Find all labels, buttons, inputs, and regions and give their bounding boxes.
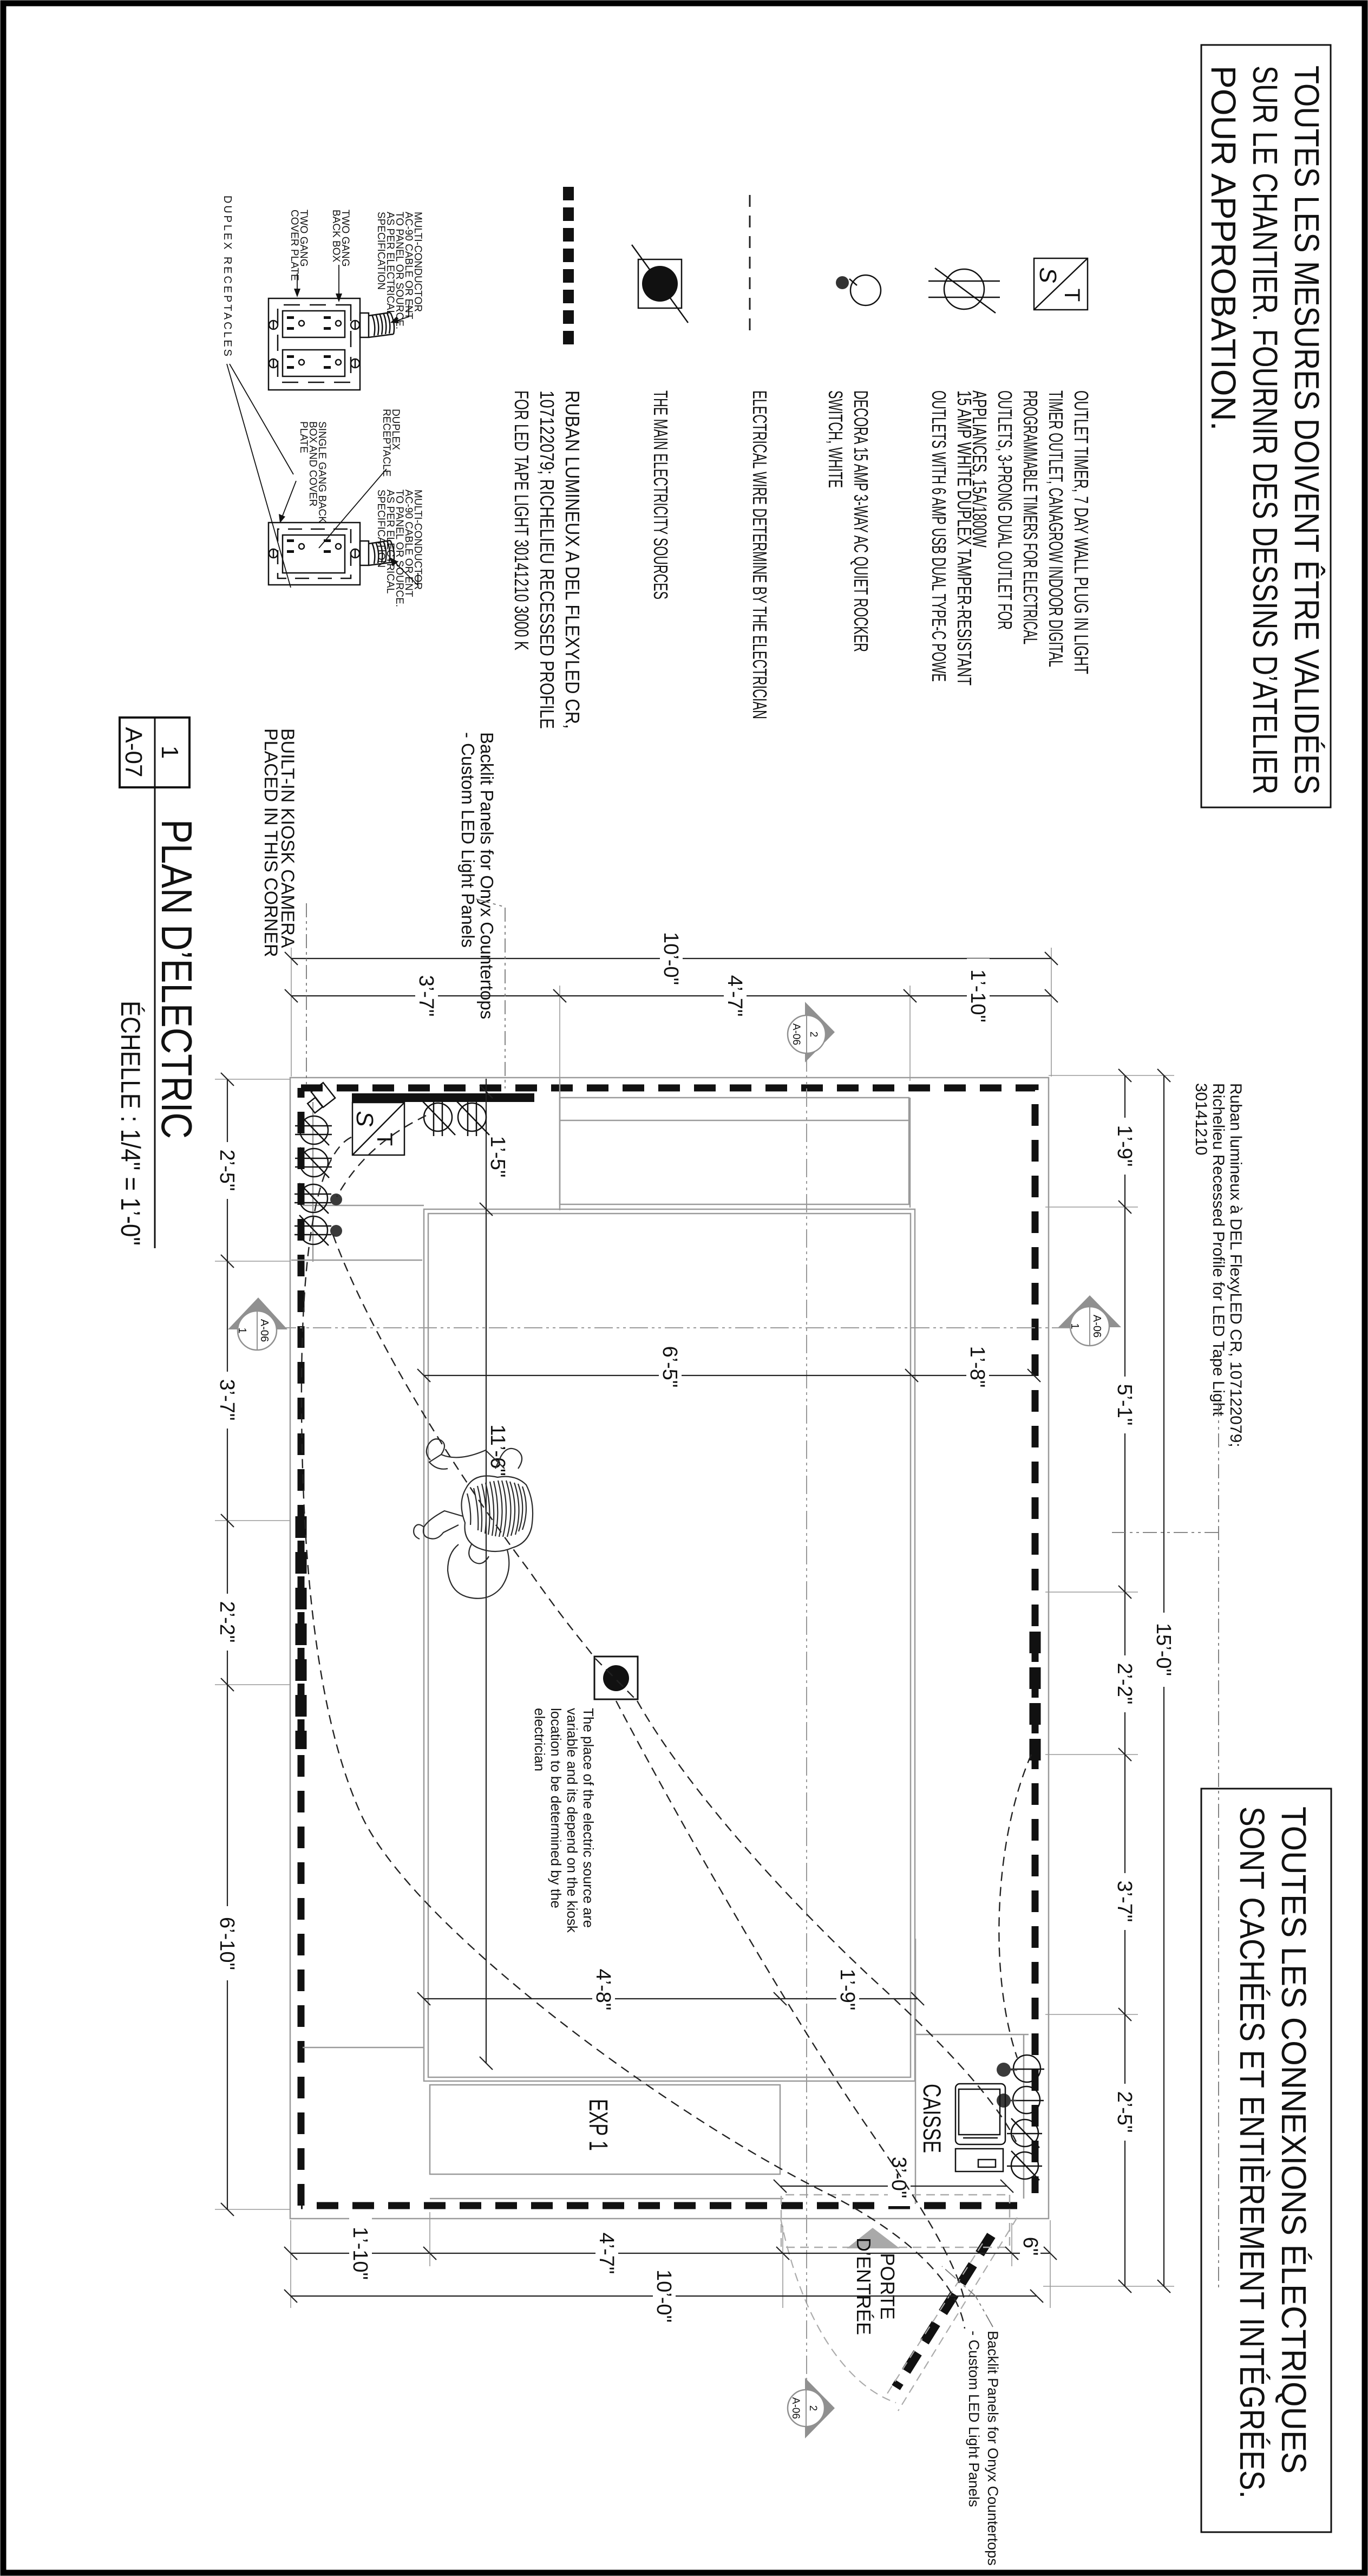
svg-text:RUBAN LUMINEUX A DEL FLEXY: RUBAN LUMINEUX A DEL FLEXYLED CR, [561, 390, 584, 729]
svg-text:FOR LED TAPE LIGHT 30141210 30: FOR LED TAPE LIGHT 30141210 3000 K [510, 390, 533, 650]
svg-text:6’-10": 6’-10" [215, 1917, 238, 1970]
svg-text:TOUTES LES CONNEXIONS ÉLECT: TOUTES LES CONNEXIONS ÉLECTRIQUES [1274, 1807, 1313, 2474]
svg-text:A-06: A-06 [1091, 1315, 1103, 1338]
svg-text:T: T [1060, 289, 1084, 302]
svg-text:4’-7": 4’-7" [723, 975, 746, 1017]
svg-text:10’-0": 10’-0" [659, 932, 682, 985]
svg-text:3’-7": 3’-7" [415, 975, 437, 1017]
svg-text:PLAN D’ELECTRIC: PLAN D’ELECTRIC [153, 819, 201, 1139]
svg-text:Backlit Panels for Onyx Counte: Backlit Panels for Onyx Countertops [985, 2331, 1001, 2566]
svg-text:1: 1 [236, 1327, 248, 1333]
svg-text:4’-7": 4’-7" [595, 2233, 618, 2274]
svg-text:EXP 1: EXP 1 [584, 2099, 612, 2151]
svg-text:Backlit Panels for Onyx Counte: Backlit Panels for Onyx Countertops [477, 732, 497, 1019]
svg-text:A-06: A-06 [258, 1319, 270, 1342]
svg-text:location to be determined by t: location to be determined by the [548, 1708, 564, 1908]
svg-text:3’-7": 3’-7" [1113, 1881, 1136, 1922]
svg-text:2: 2 [807, 2405, 819, 2411]
svg-text:PLATE: PLATE [298, 421, 309, 453]
svg-text:1: 1 [156, 746, 183, 759]
svg-text:A-06: A-06 [790, 2397, 801, 2419]
svg-text:DUPLEX RECEPTACLES: DUPLEX RECEPTACLES [221, 195, 233, 356]
svg-text:electrician: electrician [532, 1708, 548, 1771]
svg-text:1’-9": 1’-9" [836, 1969, 859, 2011]
svg-text:5’-1": 5’-1" [1113, 1384, 1136, 1426]
svg-text:D’ENTRÉE: D’ENTRÉE [853, 2238, 875, 2335]
svg-text:TOUTES LES MESURES DOIVENT: TOUTES LES MESURES DOIVENT ÊTRE VALIDÉES [1287, 66, 1326, 794]
svg-text:1: 1 [1069, 1323, 1081, 1329]
svg-text:- Custom LED Light Panels: - Custom LED Light Panels [966, 2331, 982, 2507]
svg-text:THE MAIN ELECTRICITY SOURCES: THE MAIN ELECTRICITY SOURCES [650, 390, 672, 599]
svg-text:1’-8": 1’-8" [966, 1346, 989, 1388]
svg-text:SUR LE CHANTIER. FOURNIR DES D: SUR LE CHANTIER. FOURNIR DES DESSINS D’A… [1246, 66, 1285, 794]
svg-text:S: S [351, 1111, 378, 1126]
svg-text:OUTLETS WITH 6 AMP USB DUAL TY: OUTLETS WITH 6 AMP USB DUAL TYPE-C POWE [928, 390, 950, 682]
svg-text:6": 6" [1019, 2237, 1042, 2256]
svg-text:ÉCHELLE : 1/4" = 1’-0": ÉCHELLE : 1/4" = 1’-0" [115, 1001, 146, 1245]
svg-text:OUTLETS, 3-PRONG DUAL OUTLET F: OUTLETS, 3-PRONG DUAL OUTLET FOR [994, 390, 1016, 630]
svg-text:S: S [1035, 267, 1061, 283]
svg-text:A-07: A-07 [120, 727, 147, 778]
svg-text:DECORA 15 AMP 3-WAY AC QUIET R: DECORA 15 AMP 3-WAY AC QUIET ROCKER [850, 390, 872, 652]
svg-text:A-06: A-06 [790, 1023, 802, 1045]
svg-text:107122079; RICHELIEU RECESSE: 107122079; RICHELIEU RECESSED PROFILE [536, 390, 558, 729]
svg-text:BACK BOX: BACK BOX [330, 210, 342, 262]
svg-text:SWITCH, WHITE: SWITCH, WHITE [824, 390, 847, 488]
svg-text:SPECIFICATION: SPECIFICATION [375, 212, 387, 290]
svg-text:1’-10": 1’-10" [966, 969, 989, 1022]
svg-text:2’-2": 2’-2" [1113, 1663, 1136, 1705]
svg-text:1’-10": 1’-10" [349, 2227, 371, 2280]
svg-text:PROGRAMMABLE TIMERS FOR ELECTR: PROGRAMMABLE TIMERS FOR ELECTRICAL [1019, 390, 1042, 644]
svg-text:2: 2 [808, 1032, 819, 1038]
svg-text:6’-5": 6’-5" [658, 1346, 681, 1388]
svg-text:15 AMP WHITE DUPLEX TAMPER-RES: 15 AMP WHITE DUPLEX TAMPER-RESISTANT [953, 390, 976, 686]
svg-text:SPECIFICATION: SPECIFICATION [375, 490, 387, 568]
svg-text:30141210: 30141210 [1192, 1083, 1210, 1155]
svg-text:The place of the electric sour: The place of the electric source are [580, 1708, 597, 1928]
svg-text:3’-7": 3’-7" [215, 1379, 238, 1421]
svg-text:2’-5": 2’-5" [1113, 2091, 1136, 2133]
svg-text:OUTLET TIMER, 7 DAY WALL PLUG: OUTLET TIMER, 7 DAY WALL PLUG IN LIGHT [1070, 390, 1092, 674]
svg-text:1’-5": 1’-5" [486, 1136, 509, 1178]
svg-text:3’-0": 3’-0" [887, 2157, 910, 2199]
svg-text:15’-0": 15’-0" [1152, 1623, 1175, 1676]
svg-text:2’-5": 2’-5" [215, 1150, 238, 1191]
svg-text:Ruban lumineux à DEL FlexyLED: Ruban lumineux à DEL FlexyLED CR, 107122… [1227, 1083, 1245, 1447]
svg-text:PLACED IN THIS CORNER: PLACED IN THIS CORNER [260, 728, 281, 957]
svg-text:- Custom LED Light Panels: - Custom LED Light Panels [458, 732, 478, 948]
svg-text:CAISSE: CAISSE [918, 2084, 946, 2153]
svg-text:4’-8": 4’-8" [592, 1969, 614, 2011]
svg-text:RECEPTACLE: RECEPTACLE [381, 409, 392, 477]
svg-text:2’-2": 2’-2" [215, 1601, 238, 1643]
svg-text:10’-0": 10’-0" [652, 2270, 675, 2323]
svg-text:ELECTRICAL WIRE DETERMINE BY T: ELECTRICAL WIRE DETERMINE BY THE ELECTRI… [749, 390, 771, 719]
svg-text:SONT CACHÉES ET ENTIÈREMENT IN: SONT CACHÉES ET ENTIÈREMENT INTÉGRÉES. [1233, 1807, 1272, 2499]
svg-text:Richelieu Recessed Profile for: Richelieu Recessed Profile for LED Tape … [1209, 1083, 1227, 1416]
svg-text:COVER PLATE: COVER PLATE [289, 210, 300, 281]
svg-text:TIMER OUTLET, CANAGROW INDOOR: TIMER OUTLET, CANAGROW INDOOR DIGITAL [1045, 390, 1067, 667]
svg-text:variable and its depend on the: variable and its depend on the kiosk [564, 1708, 580, 1933]
svg-text:PORTE: PORTE [876, 2253, 899, 2319]
svg-text:POUR APPROBATION.: POUR APPROBATION. [1204, 66, 1243, 431]
svg-text:1’-9": 1’-9" [1113, 1125, 1136, 1167]
